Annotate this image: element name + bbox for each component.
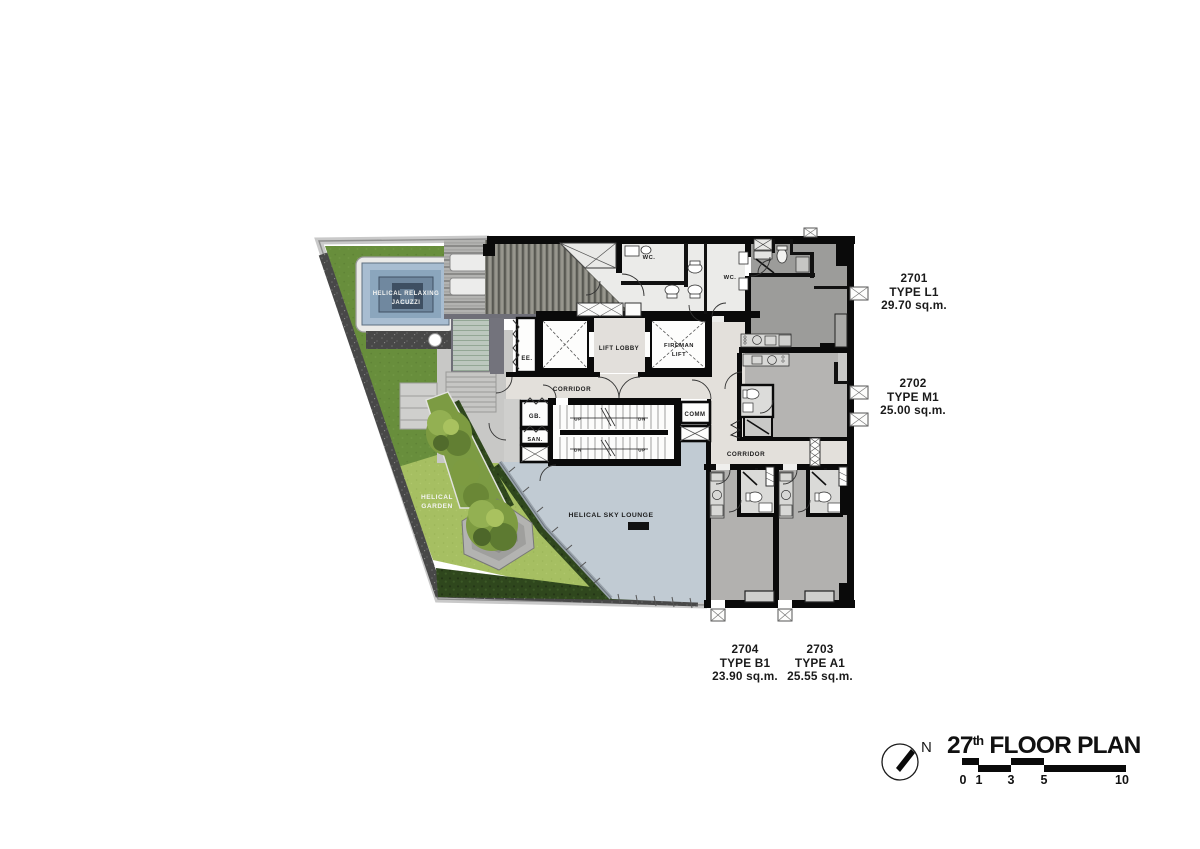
svg-text:TYPE M1: TYPE M1 bbox=[887, 390, 939, 404]
svg-text:GB.: GB. bbox=[529, 414, 541, 420]
svg-text:JACUZZI: JACUZZI bbox=[392, 300, 421, 306]
svg-text:HELICAL SKY LOUNGE: HELICAL SKY LOUNGE bbox=[568, 512, 653, 519]
svg-text:GARDEN: GARDEN bbox=[421, 503, 453, 510]
svg-text:DN: DN bbox=[638, 417, 646, 422]
svg-text:EE.: EE. bbox=[521, 356, 532, 362]
svg-text:3: 3 bbox=[1008, 773, 1015, 787]
svg-text:WC.: WC. bbox=[724, 275, 737, 281]
svg-text:TYPE B1: TYPE B1 bbox=[720, 656, 771, 670]
svg-text:25.00 sq.m.: 25.00 sq.m. bbox=[880, 403, 946, 417]
svg-text:WC.: WC. bbox=[643, 255, 656, 261]
svg-text:CORRIDOR: CORRIDOR bbox=[553, 386, 591, 393]
svg-text:HELICAL: HELICAL bbox=[421, 494, 453, 501]
svg-text:TYPE L1: TYPE L1 bbox=[889, 285, 938, 299]
svg-text:1: 1 bbox=[976, 773, 983, 787]
svg-text:UP: UP bbox=[574, 417, 581, 422]
svg-text:2704: 2704 bbox=[731, 642, 758, 656]
svg-text:DN: DN bbox=[574, 448, 582, 453]
svg-text:5: 5 bbox=[1041, 773, 1048, 787]
svg-text:UP: UP bbox=[638, 448, 645, 453]
svg-text:FIREMAN: FIREMAN bbox=[664, 343, 694, 349]
svg-text:2703: 2703 bbox=[806, 642, 833, 656]
svg-text:TYPE A1: TYPE A1 bbox=[795, 656, 845, 670]
svg-text:2701: 2701 bbox=[900, 271, 927, 285]
svg-text:10: 10 bbox=[1115, 773, 1129, 787]
svg-text:CORRIDOR: CORRIDOR bbox=[727, 451, 765, 458]
svg-text:23.90 sq.m.: 23.90 sq.m. bbox=[712, 669, 778, 683]
svg-text:COMM: COMM bbox=[685, 412, 706, 418]
svg-text:29.70 sq.m.: 29.70 sq.m. bbox=[881, 298, 947, 312]
svg-text:0: 0 bbox=[960, 773, 967, 787]
svg-text:N: N bbox=[921, 739, 932, 756]
svg-text:25.55 sq.m.: 25.55 sq.m. bbox=[787, 669, 853, 683]
svg-text:HELICAL RELAXING: HELICAL RELAXING bbox=[373, 291, 440, 297]
svg-text:SAN.: SAN. bbox=[527, 437, 542, 443]
svg-text:LIFT LOBBY: LIFT LOBBY bbox=[599, 346, 639, 352]
svg-text:LIFT: LIFT bbox=[672, 352, 686, 358]
svg-text:2702: 2702 bbox=[899, 376, 926, 390]
